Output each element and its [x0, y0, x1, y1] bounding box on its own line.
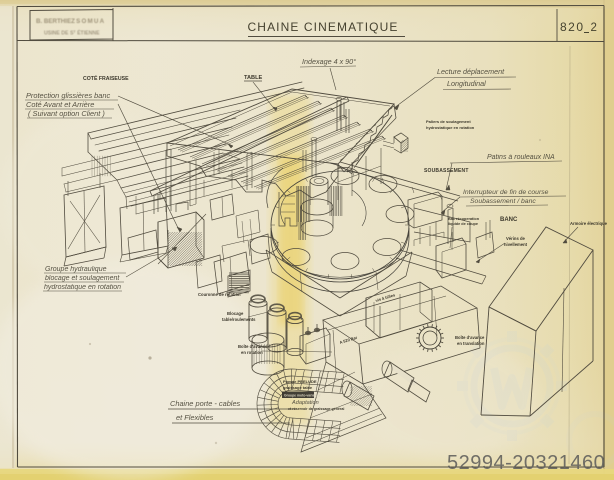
svg-text:TABLE: TABLE — [244, 75, 262, 81]
svg-text:table/roulements: table/roulements — [222, 317, 256, 322]
svg-text:Soubassement / banc: Soubassement / banc — [470, 198, 536, 205]
svg-text:hydrostatique en rotation: hydrostatique en rotation — [44, 284, 121, 291]
svg-text:Groupe moto-variateur: Groupe moto-variateur — [284, 394, 321, 398]
svg-text:et réservoir de graissage géné: et réservoir de graissage général — [288, 407, 344, 411]
svg-text:Pompe PRELUDE: Pompe PRELUDE — [283, 379, 317, 384]
svg-text:Boîte d'avance: Boîte d'avance — [238, 344, 268, 349]
svg-text:Couronne de rotation: Couronne de rotation — [198, 292, 241, 297]
svg-text:graissage table: graissage table — [283, 385, 313, 390]
svg-text:BANC: BANC — [500, 217, 518, 223]
svg-text:blocage et soulagement: blocage et soulagement — [45, 275, 120, 282]
svg-text:Protection glissières banc: Protection glissières banc — [26, 91, 111, 100]
svg-text:en translation: en translation — [457, 341, 485, 346]
svg-text:Interrupteur de fin de cours: Interrupteur de fin de course — [463, 189, 549, 196]
svg-text:Indexage 4 x 90°: Indexage 4 x 90° — [302, 57, 356, 66]
svg-text:SOUBASSEMENT: SOUBASSEMENT — [424, 168, 469, 174]
svg-text:2: 2 — [591, 22, 597, 34]
svg-text:Paliers de soulagement: Paliers de soulagement — [426, 119, 471, 124]
svg-text:et Flexibles: et Flexibles — [176, 413, 214, 422]
svg-text:Patins à rouleaux INA: Patins à rouleaux INA — [487, 154, 555, 161]
svg-text:B. BERTHIEZ S O M U A: B. BERTHIEZ S O M U A — [36, 18, 105, 25]
svg-text:820: 820 — [560, 20, 585, 34]
svg-text:Coté Avant et Arrière: Coté Avant et Arrière — [26, 100, 94, 109]
svg-text:Boîte d'avance: Boîte d'avance — [455, 335, 485, 340]
svg-text:Groupe hydraulique: Groupe hydraulique — [45, 266, 107, 273]
svg-text:Bac récuperation: Bac récuperation — [448, 217, 480, 221]
svg-text:liquide de coupe: liquide de coupe — [448, 222, 478, 226]
svg-text:Longitudinal: Longitudinal — [447, 79, 486, 88]
svg-text:Vérins de: Vérins de — [506, 236, 526, 241]
svg-text:nivellement: nivellement — [504, 242, 528, 247]
svg-text:( Suivant option Client ): ( Suivant option Client ) — [28, 109, 105, 118]
svg-text:Chaine porte - cables: Chaine porte - cables — [170, 399, 241, 408]
svg-text:COTÉ FRAISEUSE: COTÉ FRAISEUSE — [83, 74, 129, 82]
svg-text:CHAINE CINEMATIQUE: CHAINE CINEMATIQUE — [248, 20, 399, 34]
svg-text:52994-20321460: 52994-20321460 — [447, 452, 605, 474]
svg-text:hydrostatique en rotation: hydrostatique en rotation — [426, 125, 475, 130]
svg-text:Blocage: Blocage — [227, 311, 244, 316]
svg-text:USINE DE Sᵀ ÉTIENNE: USINE DE Sᵀ ÉTIENNE — [44, 29, 100, 37]
svg-text:Adaptation: Adaptation — [291, 400, 319, 406]
svg-text:en rotation: en rotation — [241, 350, 263, 355]
svg-text:Armoire électrique: Armoire électrique — [570, 221, 608, 226]
svg-text:Lecture déplacement: Lecture déplacement — [437, 67, 505, 76]
